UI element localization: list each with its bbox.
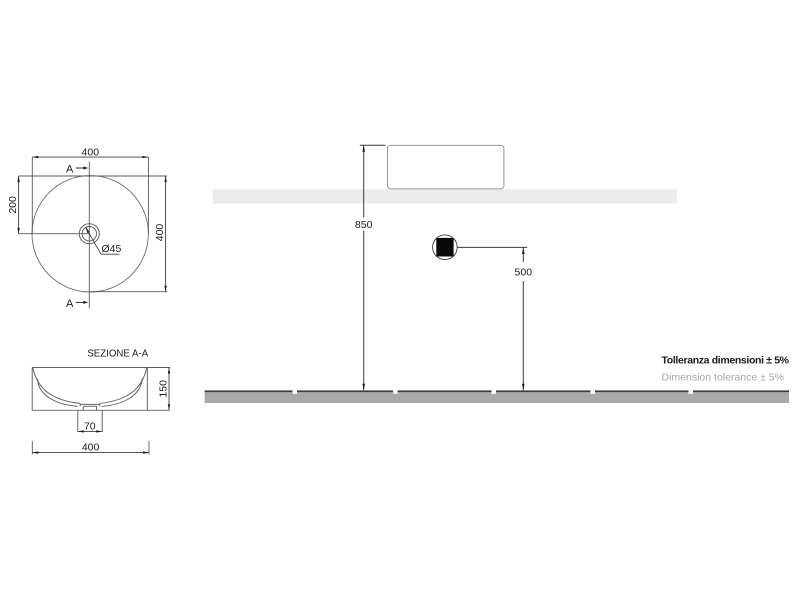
svg-text:A: A [66,298,74,310]
svg-text:70: 70 [84,420,96,432]
svg-text:400: 400 [82,146,100,158]
svg-text:400: 400 [154,224,166,242]
svg-text:A: A [66,163,74,175]
svg-text:150: 150 [157,380,169,398]
svg-text:850: 850 [355,219,373,231]
svg-text:400: 400 [82,441,100,453]
svg-text:Tolleranza dimensioni ± 5%: Tolleranza dimensioni ± 5% [662,354,790,366]
svg-text:Dimension tolerance ± 5%: Dimension tolerance ± 5% [662,372,785,384]
svg-text:SEZIONE A-A: SEZIONE A-A [87,349,148,360]
svg-text:500: 500 [515,266,533,278]
svg-text:Ø45: Ø45 [102,243,122,255]
svg-text:200: 200 [7,196,19,214]
